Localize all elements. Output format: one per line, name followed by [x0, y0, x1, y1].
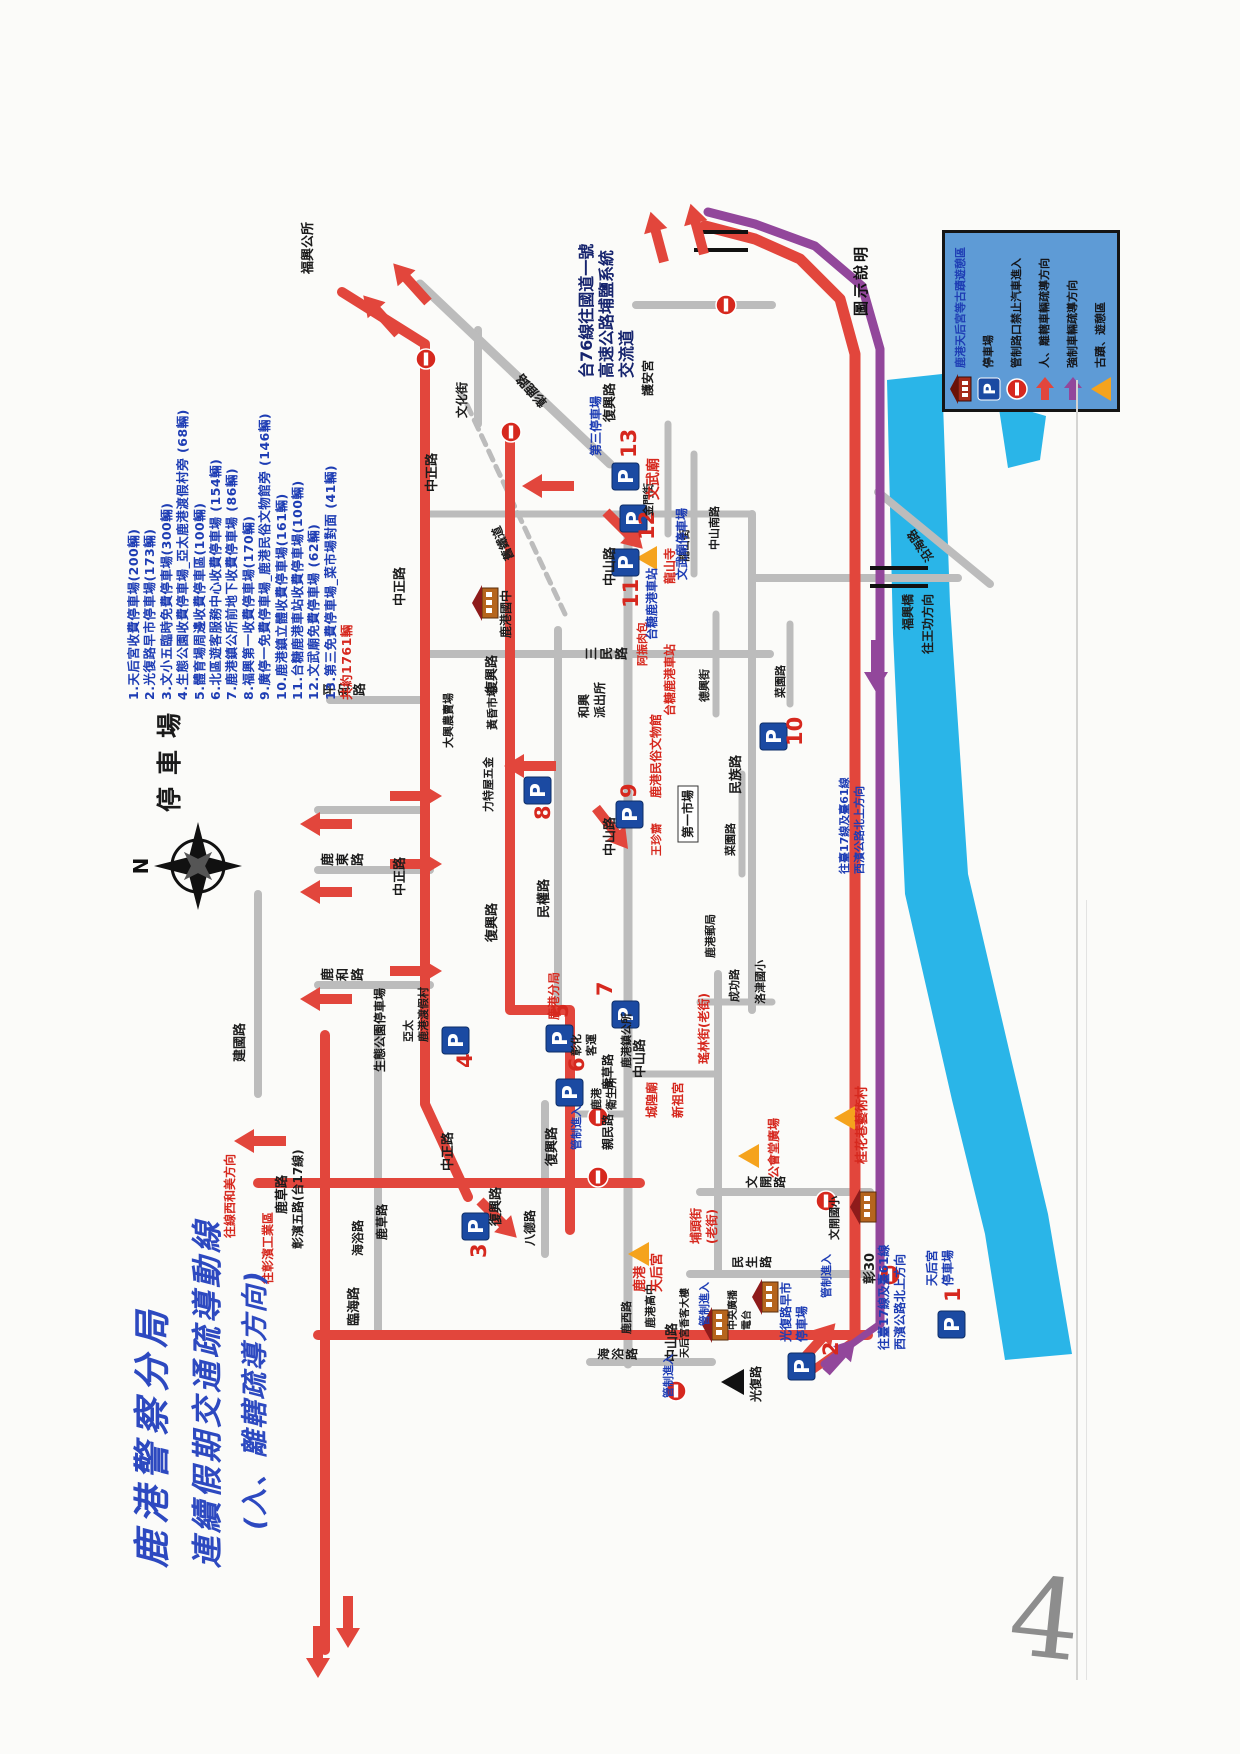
map-label: 民權路 [536, 878, 552, 918]
map-label: 護安宮 [640, 360, 655, 396]
svg-text:P: P [618, 807, 642, 822]
parking-marker-8: P8 [524, 777, 555, 820]
red-arrow-icon [300, 812, 352, 836]
svg-text:P: P [548, 1031, 572, 1046]
svg-text:P: P [464, 1219, 488, 1234]
svg-text:N: N [129, 858, 153, 875]
map-label: 鹿東路 [320, 852, 366, 866]
map-label: 文開國小 [827, 1196, 841, 1240]
purple-arrow-icon [1061, 374, 1085, 404]
map-label: 鹿港民俗文物館 [648, 714, 663, 798]
parking-list-entry: 12.文武廟免費停車場 (62輛) [306, 409, 322, 700]
no-entry-icon [1005, 374, 1029, 404]
map-label: 新祖宮 [670, 1082, 685, 1118]
parking-marker-number: 4 [453, 1053, 477, 1068]
map-label: 海浴路 [350, 1219, 365, 1256]
parking-marker-number: 13 [617, 429, 641, 458]
map-label: 中央廣播電台 [726, 1289, 753, 1330]
parking-marker-1: P1 [938, 1287, 965, 1338]
svg-text:P: P [790, 1359, 814, 1374]
map-label: 鹿港國中 [498, 590, 513, 638]
parking-list-header: 停車場 [150, 701, 186, 812]
map-label: 生態公園停車場 [372, 988, 387, 1072]
map-label: 光復路 [748, 1365, 763, 1403]
map-label: 桂花巷藝術村 [854, 1086, 870, 1165]
legend-item: 古蹟、遊憩區 [1089, 238, 1113, 404]
legend-item: 鹿港天后宮等古蹟遊憩區 [949, 238, 973, 404]
map-label: 黃昏市場 [485, 686, 499, 731]
map-label: 城隍廟 [644, 1082, 659, 1118]
parking-list-entry: 5.體育場周邊收費停車區(100輛) [192, 409, 208, 700]
map-label: 中山路 [632, 1038, 648, 1078]
map-label: 台糖鹿港車站 [662, 644, 677, 716]
orange-triangle-icon [834, 1106, 855, 1130]
map-label: 管制進入 [661, 1354, 675, 1398]
map-label: 中山路 [602, 816, 618, 856]
svg-text:P: P [980, 383, 999, 395]
scan-artifact-line [1076, 380, 1078, 1680]
map-label: 瑤林街(老街) [696, 993, 711, 1064]
parking-list-entry: 9.廣停一免費停車場_鹿港民俗文物館旁 (146輛) [257, 409, 273, 700]
rotated-map-canvas: P1P2P3P4P5P6P7P8P9P10P11P12P13中正路中正路中正路中… [0, 0, 1240, 1754]
map-label: 彰化客運 [569, 1033, 598, 1057]
map-label: 文化街 [454, 382, 469, 418]
red-arrow-icon [522, 474, 574, 498]
parking-marker-number: 11 [619, 579, 643, 608]
parking-marker-number: 9 [617, 783, 641, 798]
parking-list-entry: 1.天后宮收費停車場(200輛) [126, 409, 142, 700]
red-arrow-icon [1033, 374, 1057, 404]
map-label: 彰濱五路(台17線) [290, 1149, 305, 1249]
red-arrow-icon [234, 1129, 286, 1153]
map-label: 親民路 [600, 1113, 615, 1150]
map-label: 鹿港分局 [546, 972, 561, 1020]
red-arrow-icon [354, 287, 407, 342]
map-label: 鹿和路 [320, 967, 366, 981]
map-label: 民族路 [728, 754, 744, 794]
legend-item: 強制車輛疏導方向 [1061, 238, 1085, 404]
red-arrow-icon [336, 1596, 360, 1648]
map-label: 菜園路 [773, 664, 787, 699]
title-line3: (入、離轄疏導方向) [233, 1218, 272, 1530]
orange-triangle-icon [738, 1144, 759, 1168]
svg-text:P: P [526, 783, 550, 798]
map-label: 文武廟 [645, 458, 662, 500]
map-label: 天后宮停車場 [924, 1250, 955, 1286]
map-label: 彰30 [862, 1253, 878, 1284]
legend-item-label: 強制車輛疏導方向 [1067, 280, 1079, 368]
map-label: 力特屋五金 [481, 756, 495, 812]
legend-item: P停車場 [977, 238, 1001, 404]
map-label: 中山南路 [707, 505, 721, 550]
handwritten-page-number: 4 [1004, 1552, 1087, 1687]
parking-marker-9: P9 [616, 783, 643, 828]
parking-marker-4: P4 [442, 1027, 477, 1068]
svg-text:P: P [940, 1317, 964, 1332]
svg-text:P: P [558, 1085, 582, 1100]
map-label: 王珍齋 [649, 822, 663, 856]
red-arrow-icon [390, 959, 442, 983]
map-label: 中山路 [602, 546, 618, 586]
map-label: 第一市場 [680, 790, 695, 838]
map-label: 成功路 [727, 968, 741, 1002]
map-label: 往臺17線及臺61線西濱公路北上方向 [876, 1245, 907, 1350]
red-arrow-icon [300, 880, 352, 904]
map-label: 中正路 [392, 566, 408, 606]
map-label: 第三停車場 [588, 396, 603, 456]
map-label: 台糖鹿港車站 [644, 568, 659, 640]
red-arrow-icon [300, 987, 352, 1011]
parking-list-entry: 10.鹿港鎮立體收費停車場(161輛) [274, 409, 290, 700]
parking-marker-3: P3 [462, 1213, 491, 1258]
parking-list-entry: 4.生態公園收費停車場_亞太鹿港渡假村旁 (68輛) [175, 409, 191, 700]
parking-icon: P [977, 374, 1001, 404]
parking-list-entry: 8.福興第一收費停車場(170輛) [241, 409, 257, 700]
temple-icon [949, 374, 973, 404]
parking-list-entry: 3.文小五臨時免費停車場(300輛) [159, 409, 175, 700]
black-triangle-icon [721, 1369, 744, 1395]
red-arrow-icon [384, 255, 437, 310]
map-label: 和興派出所 [576, 682, 607, 719]
no-entry-icon [588, 1167, 608, 1187]
parking-marker-number: 1 [941, 1287, 965, 1302]
legend-item-label: 古蹟、遊憩區 [1095, 302, 1107, 368]
map-label: 大興農賣場 [441, 693, 455, 748]
parking-marker-10: P10 [760, 717, 807, 750]
no-entry-icon [716, 295, 736, 315]
legend-item: 管制路口禁止汽車進入 [1005, 238, 1029, 404]
map-label: 福興公所 [300, 222, 316, 275]
legend-item-label: 管制路口禁止汽車進入 [1011, 258, 1023, 368]
map-label: 復興路 [602, 382, 618, 423]
legend-box: 鹿港天后宮等古蹟遊憩區P停車場管制路口禁止汽車進入人、離轄車輛疏導方向強制車輛疏… [942, 230, 1120, 412]
map-label: 文武廟停車場 [674, 508, 689, 580]
map-label: 鹿草路 [274, 1174, 290, 1214]
map-label: 鹿草路 [374, 1203, 389, 1240]
map-label: 中正路 [392, 856, 408, 896]
map-label: 洛津國小 [753, 960, 767, 1004]
scan-artifact-line [1086, 900, 1087, 1680]
no-entry-icon [501, 422, 521, 442]
svg-text:P: P [444, 1033, 468, 1048]
parking-marker-number: 2 [819, 1341, 843, 1356]
parking-list: 1.天后宮收費停車場(200輛)2.光復路早市停車場(173輛)3.文小五臨時免… [126, 409, 356, 700]
parking-marker-number: 8 [531, 805, 555, 820]
map-label: 台76線往國道一號高速公路埔鹽系統交流道 [577, 244, 636, 378]
map-label: 德興街 [697, 669, 711, 703]
map-label: 公會堂廣場 [766, 1118, 781, 1178]
map-label: 復興路 [544, 1126, 560, 1167]
map-label: 管制進入 [569, 1106, 583, 1150]
map-label: 海浴路 [596, 1347, 639, 1360]
map-label: 福興橋 [900, 593, 915, 631]
title-line2: 連續假期交通疏導動線 [182, 1218, 227, 1568]
no-entry-icon [416, 349, 436, 369]
map-label: 菜園路 [723, 822, 737, 857]
map-label: 亞太鹿港渡假村 [401, 987, 430, 1042]
parking-list-entry: 7.鹿港鎮公所前地下收費停車場 (86輛) [224, 409, 240, 700]
map-label: 埔頭街(老街) [688, 1208, 719, 1244]
parking-marker-6: P6 [556, 1057, 589, 1106]
map-title: 鹿港警察分局 連續假期交通疏導動線 (入、離轄疏導方向) [122, 1218, 272, 1568]
legend-item-label: 鹿港天后宮等古蹟遊憩區 [955, 247, 967, 368]
map-label: 鹿港郵局 [703, 914, 717, 958]
map-label: 鹿港鎮公所 [619, 1013, 633, 1068]
map-label: 鹿西路 [619, 1300, 633, 1334]
map-label: 復興路 [488, 1186, 504, 1227]
parking-list-entry: 13.第三免費停車場_菜市場對面 (41輛) [323, 409, 339, 700]
legend-item-label: 停車場 [983, 335, 995, 368]
parking-list-entry: 11.台糖鹿港車站收費停車場(100輛) [290, 409, 306, 700]
title-line1: 鹿港警察分局 [122, 1218, 176, 1568]
parking-marker-13: P13 [612, 429, 641, 490]
parking-marker-number: 7 [593, 981, 617, 996]
map-label: 建國路 [232, 1022, 248, 1062]
building-icon [752, 1279, 778, 1315]
parking-list-total: 共約1761輛 [339, 409, 355, 700]
legend-item: 人、離轄車輛疏導方向 [1033, 238, 1057, 404]
red-arrow-icon [639, 209, 676, 265]
parking-marker-number: 3 [467, 1243, 491, 1258]
legend-item-label: 人、離轄車輛疏導方向 [1039, 258, 1051, 368]
parking-marker-number: 10 [783, 717, 807, 746]
parking-marker-number: 6 [565, 1057, 589, 1072]
map-label: 中正路 [424, 452, 440, 492]
map-label: 臨海路 [346, 1286, 362, 1326]
red-arrow-icon [390, 784, 442, 808]
map-label: 八德路 [522, 1209, 537, 1247]
map-label: 管制進入 [819, 1254, 833, 1298]
legend-title: 圖示說明 [850, 244, 871, 316]
map-label: 管制進入 [697, 1282, 711, 1326]
map-label: 天后宮香客大樓 [678, 1288, 691, 1358]
map-label: 三民路 [585, 646, 630, 660]
scanned-map-page: P1P2P3P4P5P6P7P8P9P10P11P12P13中正路中正路中正路中… [0, 0, 1240, 1754]
compass-icon: N [129, 822, 242, 910]
orange-triangle-icon [1089, 374, 1113, 404]
parking-list-entry: 6.北區遊客服務中心收費停車場 (154輛) [208, 409, 224, 700]
map-label: 民生路 [731, 1255, 773, 1268]
map-label: 中正路 [440, 1131, 456, 1171]
map-label: 復興路 [484, 902, 500, 943]
svg-text:P: P [614, 469, 638, 484]
map-label: 往王功方向 [920, 594, 935, 654]
parking-list-entry: 2.光復路早市停車場(173輛) [142, 409, 158, 700]
building-icon [472, 585, 498, 621]
